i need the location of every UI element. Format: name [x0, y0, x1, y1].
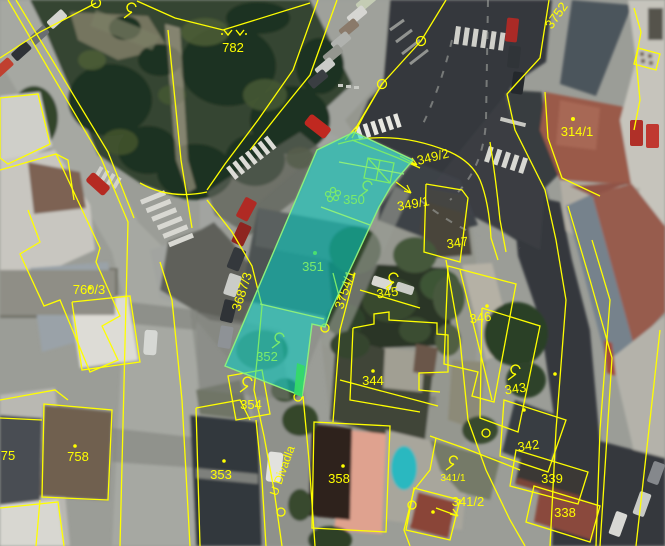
svg-text:782: 782 — [222, 40, 244, 55]
svg-text:314/1: 314/1 — [561, 124, 594, 139]
svg-text:341/1: 341/1 — [440, 473, 465, 484]
svg-text:344: 344 — [362, 373, 384, 388]
svg-text:339: 339 — [541, 471, 563, 486]
svg-text:758: 758 — [67, 449, 89, 464]
svg-text:338: 338 — [554, 505, 576, 520]
svg-text:341/2: 341/2 — [452, 494, 485, 509]
svg-text:347: 347 — [446, 234, 470, 252]
svg-text:358: 358 — [328, 471, 350, 486]
svg-text:354: 354 — [240, 397, 262, 412]
svg-text:346: 346 — [469, 309, 493, 327]
svg-text:760/3: 760/3 — [73, 282, 106, 297]
svg-text:353: 353 — [210, 467, 232, 482]
svg-text:343: 343 — [504, 380, 528, 398]
svg-text:345: 345 — [376, 284, 400, 302]
svg-text:75: 75 — [1, 448, 15, 463]
svg-text:342: 342 — [517, 437, 541, 455]
